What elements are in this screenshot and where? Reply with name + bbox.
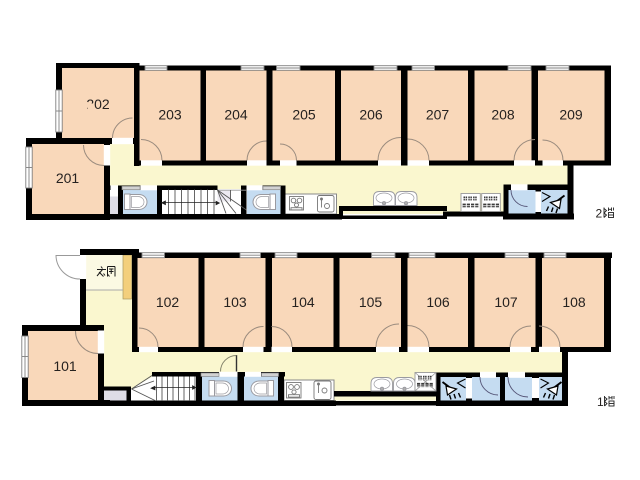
svg-text:204: 204 [224, 107, 248, 123]
svg-text:102: 102 [156, 294, 180, 310]
svg-text:209: 209 [559, 107, 583, 123]
svg-text:2: 2 [596, 207, 603, 221]
svg-text:104: 104 [291, 294, 315, 310]
svg-text:207: 207 [426, 107, 450, 123]
svg-text:106: 106 [426, 294, 450, 310]
svg-text:206: 206 [359, 107, 383, 123]
svg-text:101: 101 [53, 358, 77, 374]
svg-text:107: 107 [494, 294, 518, 310]
svg-text:105: 105 [359, 294, 383, 310]
svg-text:108: 108 [562, 294, 586, 310]
svg-text:208: 208 [491, 107, 515, 123]
svg-text:205: 205 [292, 107, 316, 123]
svg-text:1: 1 [597, 395, 604, 409]
svg-text:103: 103 [223, 294, 247, 310]
svg-text:201: 201 [56, 170, 80, 186]
svg-text:203: 203 [158, 107, 182, 123]
